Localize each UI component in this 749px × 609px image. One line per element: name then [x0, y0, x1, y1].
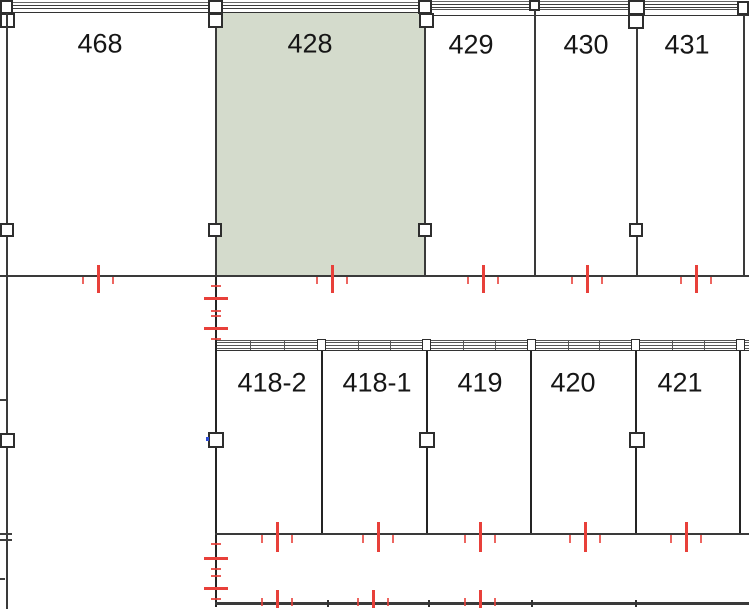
- dimension-tick: [211, 598, 221, 600]
- bottom-facade-line: [215, 602, 749, 605]
- junction-marker: [628, 14, 644, 29]
- dimension-tick: [494, 535, 496, 543]
- wall-stub: [0, 578, 5, 580]
- wall-stub: [635, 600, 637, 607]
- wall-stub: [531, 600, 533, 607]
- wall-429-430: [534, 10, 536, 276]
- dimension-tick: [204, 327, 228, 330]
- dimension-tick: [211, 543, 221, 545]
- wall-stub: [0, 399, 6, 401]
- mullion-block: [317, 339, 326, 351]
- dimension-tick: [204, 557, 228, 560]
- wall-stub: [327, 600, 329, 607]
- dimension-tick: [112, 277, 114, 284]
- dimension-tick: [601, 277, 603, 284]
- junction-marker: [208, 13, 223, 28]
- dimension-tick: [695, 265, 698, 293]
- dimension-tick: [377, 522, 380, 552]
- dimension-tick: [362, 535, 364, 543]
- junction-marker: [208, 223, 222, 237]
- dimension-tick: [261, 598, 263, 606]
- dimension-tick: [276, 590, 279, 608]
- mullion-block: [527, 339, 536, 351]
- mullion-block: [628, 0, 645, 15]
- dimension-tick: [586, 265, 589, 293]
- pane-divider: [463, 341, 464, 350]
- dimension-tick: [482, 265, 485, 293]
- dimension-tick: [710, 277, 712, 284]
- dimension-tick: [464, 535, 466, 543]
- room-label-431: 431: [664, 30, 709, 61]
- wall-stub: [428, 600, 430, 607]
- mullion-block: [631, 339, 640, 351]
- mullion-block: [208, 0, 223, 14]
- wall-stub: [0, 539, 12, 541]
- dimension-tick: [571, 277, 573, 284]
- dimension-tick: [291, 598, 293, 606]
- dimension-tick: [97, 265, 100, 293]
- wall-stub: [0, 533, 12, 535]
- dimension-tick: [569, 535, 571, 543]
- junction-marker: [629, 432, 645, 448]
- dimension-tick: [464, 598, 466, 606]
- room-label-468: 468: [77, 29, 122, 60]
- pane-divider: [390, 341, 391, 350]
- pane-divider: [704, 341, 705, 350]
- mullion-block: [737, 1, 749, 15]
- dimension-tick: [211, 285, 221, 287]
- pane-divider: [672, 341, 673, 350]
- dimension-tick: [261, 535, 263, 543]
- wall-419-420: [530, 350, 532, 534]
- wall-right-exterior-upper: [743, 15, 745, 276]
- pane-divider: [568, 341, 569, 350]
- dimension-tick: [584, 522, 587, 552]
- dimension-tick: [211, 575, 221, 577]
- dimension-tick: [276, 522, 279, 552]
- wall-468-428: [215, 28, 217, 276]
- pane-divider: [284, 341, 285, 350]
- dimension-tick: [211, 338, 221, 340]
- dimension-tick: [82, 277, 84, 284]
- junction-marker: [208, 432, 224, 448]
- room-label-429: 429: [448, 30, 493, 61]
- corridor-line-lower: [215, 533, 749, 535]
- dimension-tick: [204, 297, 228, 300]
- dimension-tick: [494, 598, 496, 606]
- junction-marker: [629, 223, 643, 237]
- room-label-418-1: 418-1: [342, 368, 411, 399]
- dimension-tick: [479, 522, 482, 552]
- dimension-tick: [670, 535, 672, 543]
- dimension-tick: [316, 277, 318, 284]
- glazing-band: [432, 4, 749, 8]
- dimension-tick: [497, 277, 499, 284]
- dimension-tick: [357, 598, 359, 606]
- room-label-421: 421: [657, 368, 702, 399]
- junction-marker: [418, 223, 432, 237]
- pane-divider: [599, 341, 600, 350]
- wall-428-429: [424, 28, 426, 276]
- floor-plan: 468 428 429 430 431 418-2 418-1 419 420 …: [0, 0, 749, 609]
- pane-divider: [250, 341, 251, 350]
- mullion-block: [0, 0, 13, 14]
- blue-mark: [206, 437, 209, 441]
- dimension-tick: [331, 265, 334, 293]
- wall-418-2-418-1: [321, 350, 323, 534]
- dimension-tick: [700, 535, 702, 543]
- junction-marker: [0, 433, 15, 448]
- dimension-tick: [479, 590, 482, 608]
- glazing-band: [217, 342, 749, 349]
- mullion-block: [422, 339, 431, 351]
- dimension-tick: [211, 568, 221, 570]
- wall-430-431: [636, 29, 638, 276]
- dimension-tick: [467, 277, 469, 284]
- dimension-tick: [346, 277, 348, 284]
- room-label-419: 419: [457, 368, 502, 399]
- dimension-tick: [680, 277, 682, 284]
- dimension-tick: [387, 598, 389, 606]
- room-top-line-right: [425, 15, 749, 16]
- dimension-tick: [392, 535, 394, 543]
- wall-lower-right: [739, 350, 741, 534]
- junction-marker: [419, 13, 434, 28]
- dimension-tick: [372, 590, 375, 608]
- pane-divider: [358, 341, 359, 350]
- room-label-418-2: 418-2: [237, 368, 306, 399]
- dimension-tick: [204, 587, 228, 590]
- mullion-block: [736, 339, 745, 351]
- room-label-430: 430: [563, 30, 608, 61]
- room-label-420: 420: [550, 368, 595, 399]
- pane-divider: [495, 341, 496, 350]
- junction-marker: [419, 432, 435, 448]
- dimension-tick: [211, 315, 221, 317]
- junction-marker: [0, 223, 14, 237]
- dimension-tick: [599, 535, 601, 543]
- dimension-tick: [211, 310, 221, 312]
- mullion-block: [418, 0, 432, 14]
- dimension-tick: [291, 535, 293, 543]
- dimension-tick: [685, 522, 688, 552]
- room-label-428: 428: [287, 29, 332, 60]
